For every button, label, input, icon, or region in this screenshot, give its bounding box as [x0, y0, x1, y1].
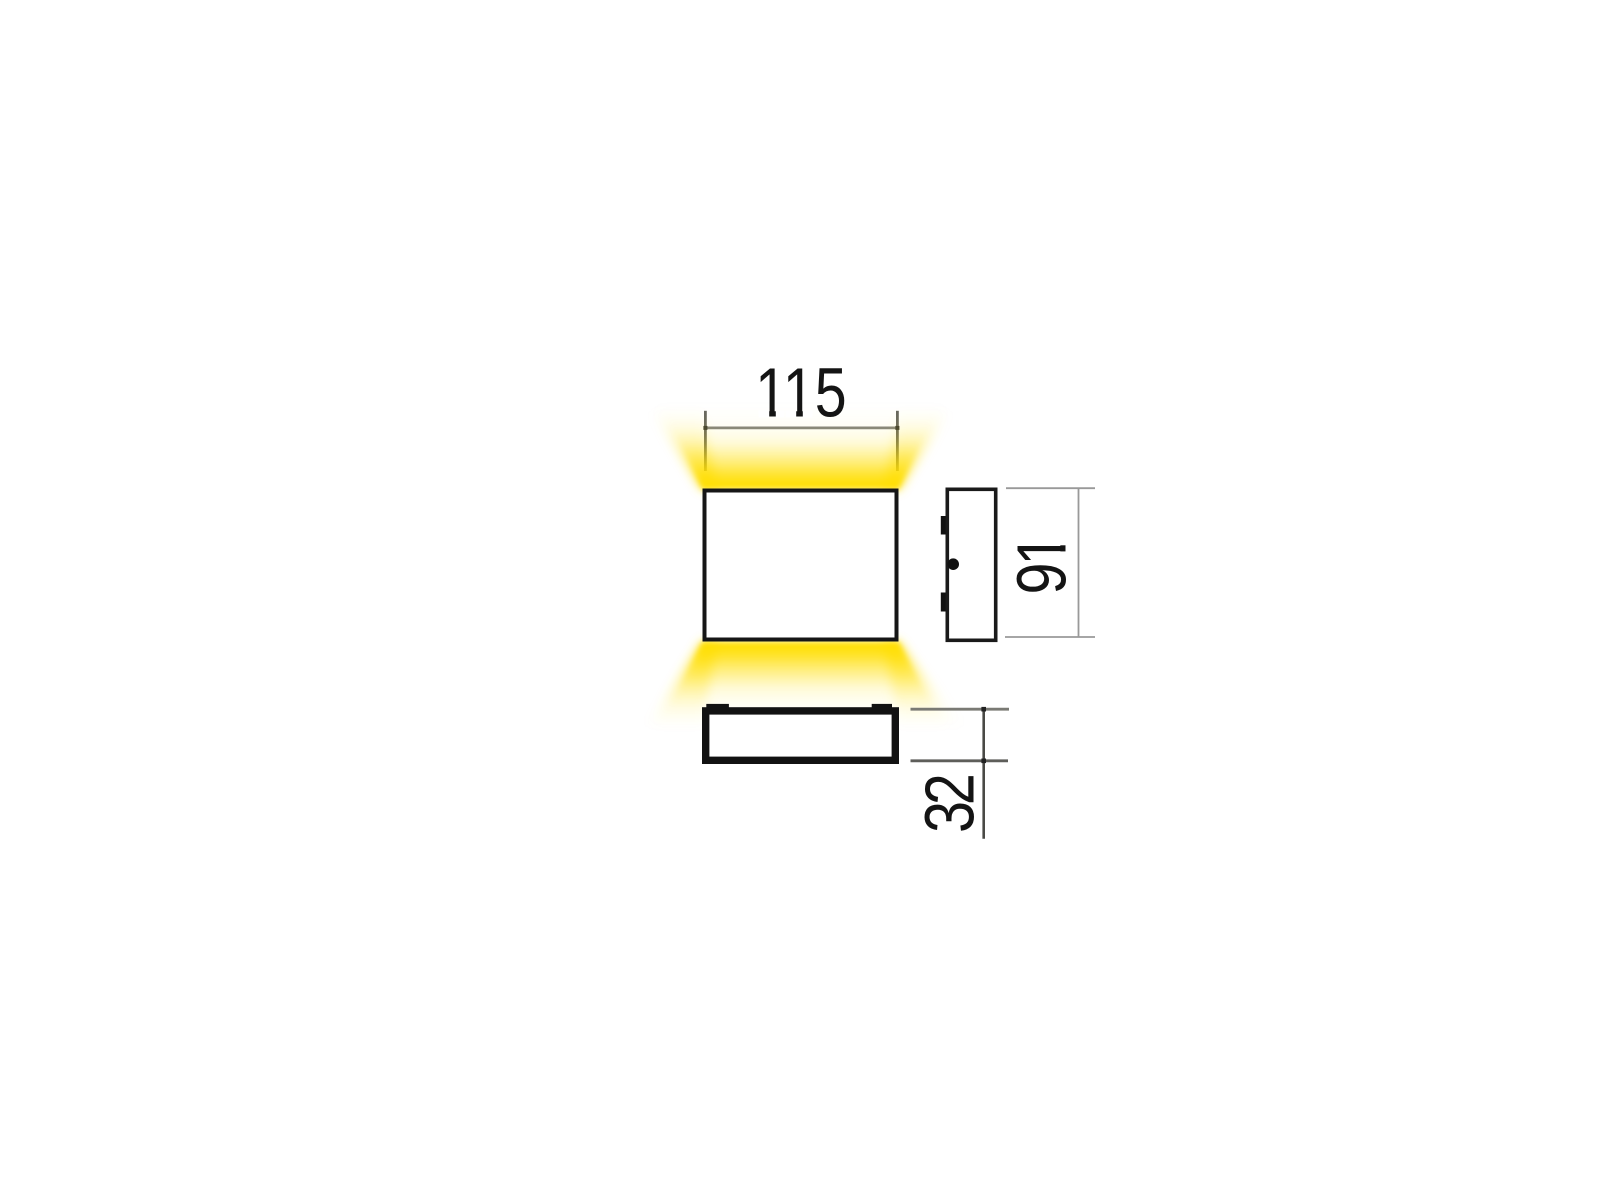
svg-text:115: 115 [755, 353, 846, 432]
svg-text:32: 32 [910, 776, 989, 833]
svg-text:1: 1 [1002, 534, 1081, 566]
svg-text:9: 9 [1002, 563, 1081, 595]
